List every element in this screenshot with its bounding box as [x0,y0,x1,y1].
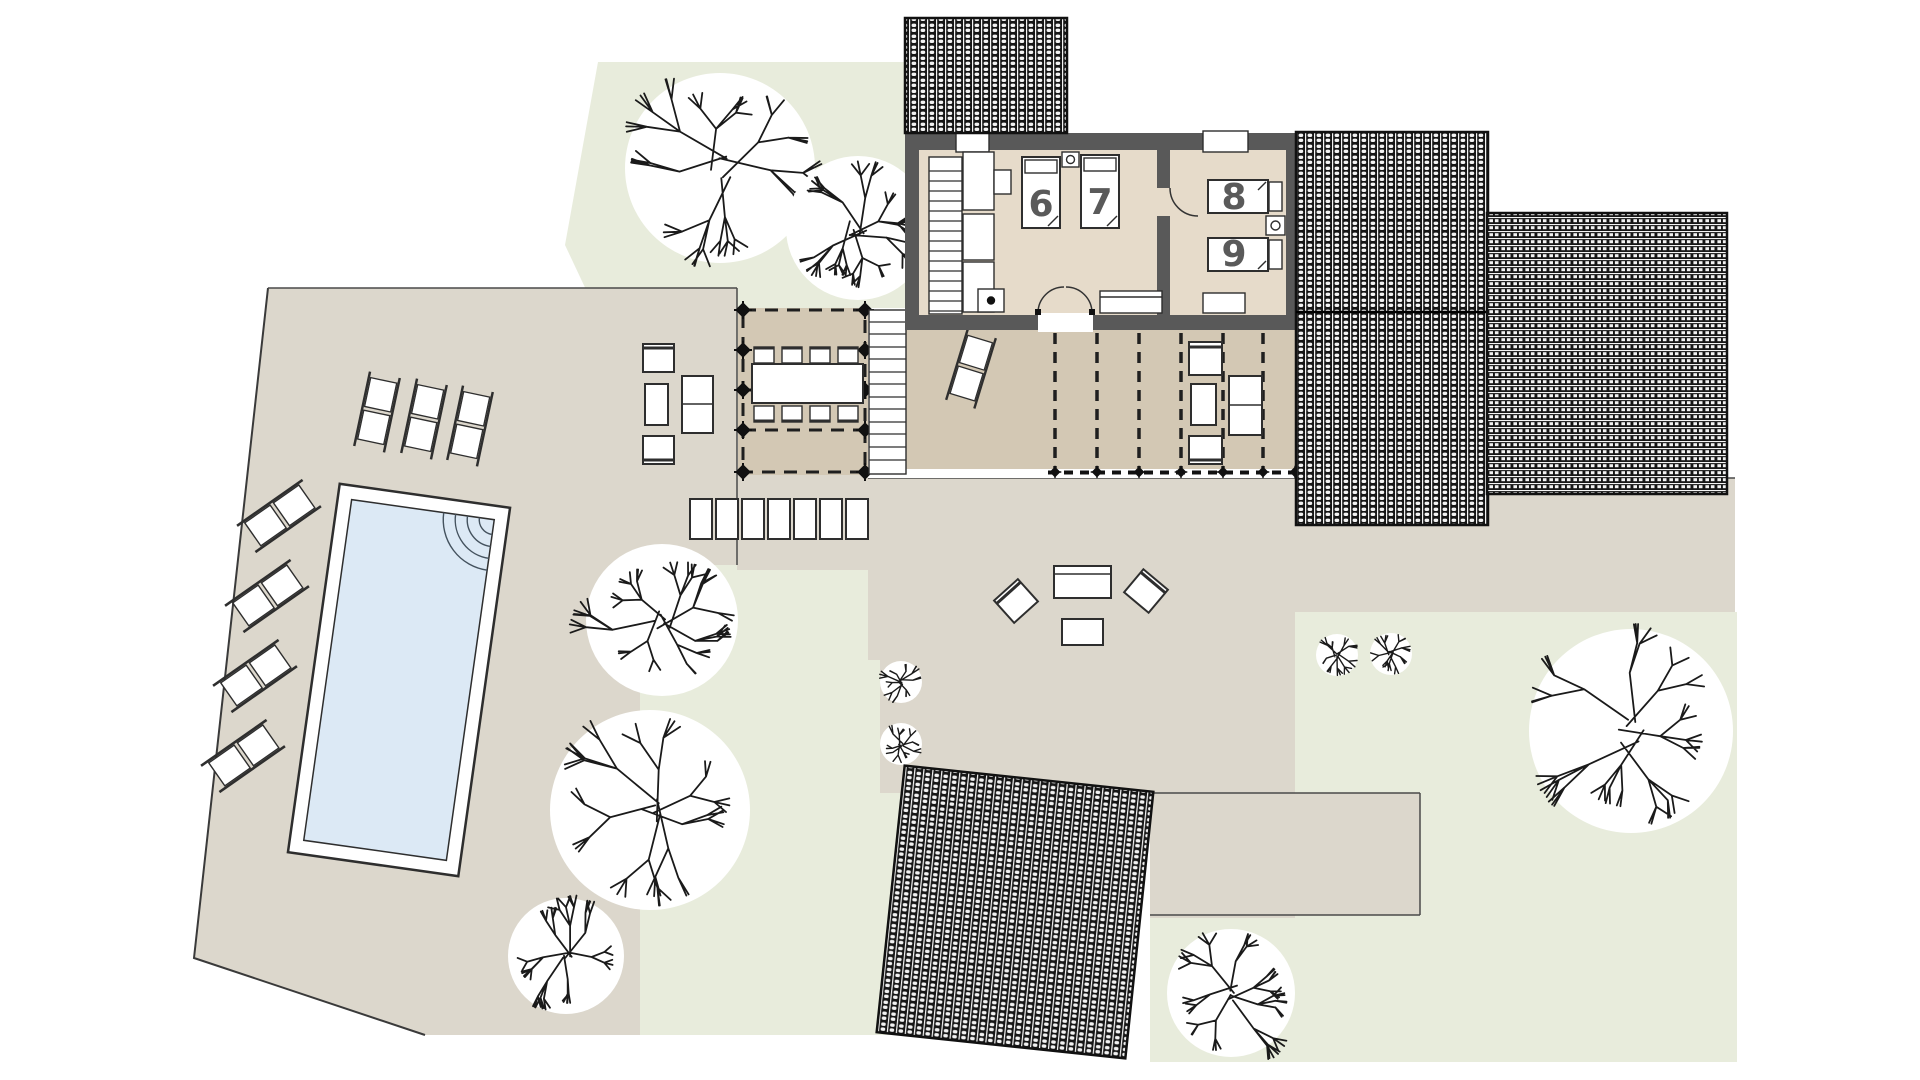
roof-east-1 [1296,132,1488,525]
toilet [1266,216,1285,235]
armchair [643,436,674,464]
coffee-table [1062,619,1103,645]
stairs-interior [929,157,962,314]
partition-wall [1157,150,1170,188]
armchair [643,344,674,372]
drive-band-east [1150,793,1420,915]
shrub [1316,634,1358,676]
room-8-label: 8 [1221,177,1246,218]
shrub [1370,633,1412,675]
site-plan-page: 6 7 8 9 [0,0,1920,1080]
room-9-label: 9 [1221,234,1246,275]
window [1203,131,1248,152]
roof-north [905,18,1067,133]
entry-door-opening [1038,313,1093,332]
building: 6 7 8 9 [905,131,1300,332]
roof-south [877,766,1154,1059]
side-table [645,384,668,425]
stairs-exterior [869,310,906,474]
sofa [1054,566,1111,598]
nightstand [1062,152,1079,167]
garden-steps [690,499,868,539]
room-7-label: 7 [1087,182,1112,223]
fixture [978,289,1004,312]
dining-table [752,364,863,403]
bench [1203,293,1245,313]
sofa [1100,291,1162,313]
chaise [1229,376,1262,435]
chaise [682,376,713,433]
site-plan-drawing: 6 7 8 9 [0,0,1920,1080]
shrub [880,723,922,765]
tree [550,710,750,910]
shrub [880,661,922,703]
room-6-label: 6 [1028,184,1053,225]
roof-east-2 [1487,213,1727,494]
